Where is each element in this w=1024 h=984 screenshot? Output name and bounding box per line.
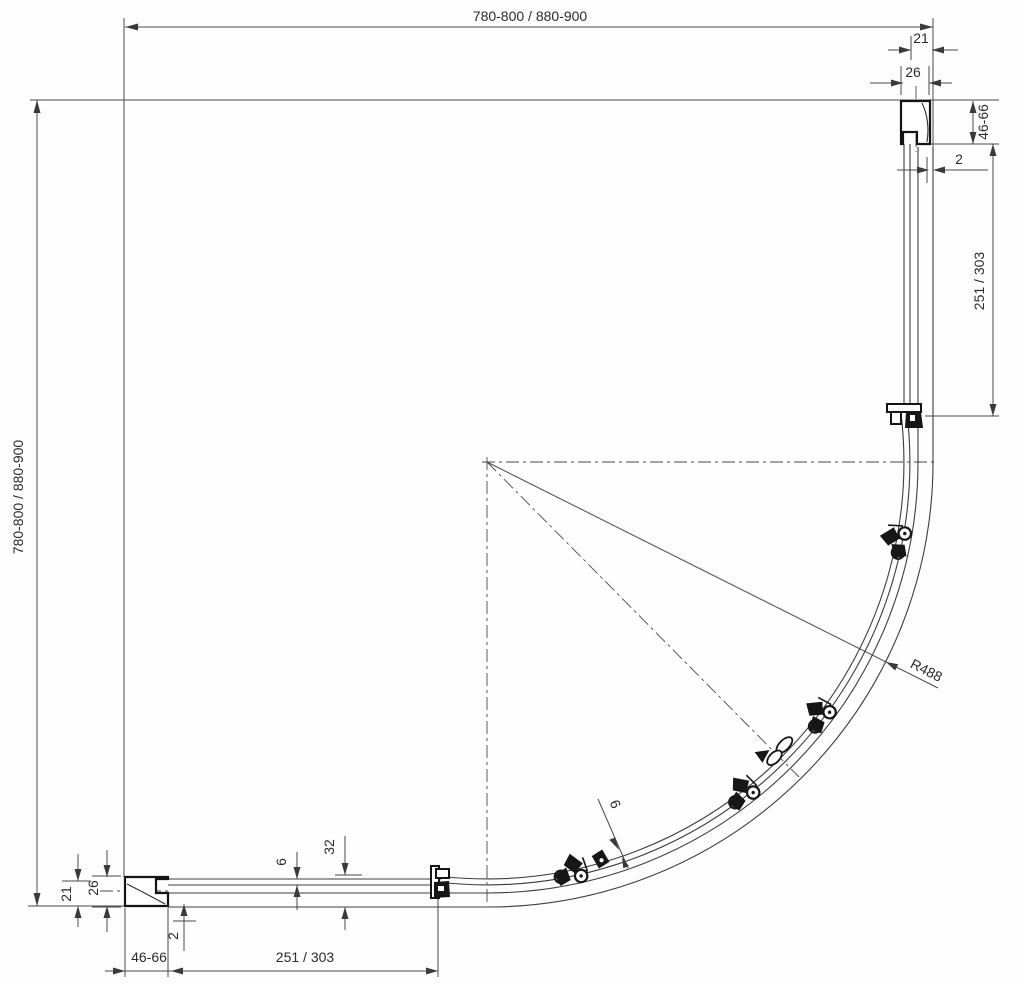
wall-profile-top-right	[901, 101, 930, 144]
dim-right-251-303	[990, 144, 997, 416]
wall-profile-bottom-left	[125, 877, 168, 906]
shower-enclosure-plan-drawing: 780-800 / 880-900 780-800 / 880-900 21 2…	[0, 0, 1024, 984]
track-bracket-top	[887, 404, 923, 428]
dim-bottom-46-66	[105, 968, 438, 975]
dim-radius-r488	[487, 462, 938, 688]
dim-top-gap-2	[897, 157, 988, 183]
technical-drawing-page: 780-800 / 880-900 780-800 / 880-900 21 2…	[0, 0, 1024, 984]
curved-track-rails	[168, 147, 933, 907]
dim-left-height-label: 780-800 / 880-900	[10, 440, 26, 555]
dim-bottom-32-label: 32	[321, 839, 337, 855]
fixed-panel-top-glass	[904, 144, 910, 407]
dim-top-26-label: 26	[905, 64, 921, 80]
center-lines	[100, 86, 935, 905]
dim-right-251-303-label: 251 / 303	[971, 252, 987, 311]
dim-bottom-21-label: 21	[58, 886, 74, 902]
dim-bottom-26-label: 26	[85, 880, 101, 896]
roller-carriage	[795, 692, 839, 737]
dim-bottom-rail-32	[335, 836, 362, 930]
dim-arc-glass-6-label: 6	[607, 797, 625, 811]
roller-carriages	[551, 522, 912, 887]
dim-bottom-251-303-label: 251 / 303	[276, 949, 335, 965]
dim-top-21-label: 21	[913, 30, 929, 46]
track-bracket-bottom	[431, 866, 450, 898]
dim-overall-height	[34, 100, 41, 906]
dim-radius-r488-label: R488	[908, 655, 945, 685]
fixed-panel-bottom-glass	[168, 879, 441, 885]
dim-top-2-label: 2	[955, 151, 963, 167]
dim-bottom-46-66-label: 46-66	[131, 949, 167, 965]
dim-top-46-66-label: 46-66	[975, 104, 991, 140]
dim-bottom-6-label: 6	[273, 858, 289, 866]
dim-overall-width	[125, 24, 933, 31]
dim-bottom-glass-6	[294, 852, 301, 910]
dim-top-width-label: 780-800 / 880-900	[473, 8, 588, 24]
dim-bottom-2-label: 2	[165, 932, 181, 940]
roller-guide-block	[591, 849, 611, 870]
roller-carriage	[718, 769, 763, 813]
roller-carriage	[551, 851, 589, 887]
dim-bottom-gap-2	[173, 904, 196, 951]
dimension-labels: 780-800 / 880-900 780-800 / 880-900 21 2…	[10, 8, 991, 965]
roller-carriage	[876, 522, 912, 560]
extension-lines	[28, 18, 999, 977]
